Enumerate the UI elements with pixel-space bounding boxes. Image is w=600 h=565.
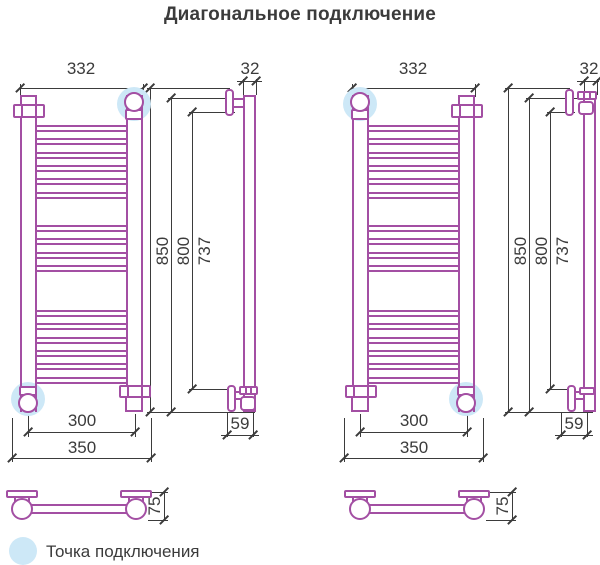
extension-line	[147, 88, 230, 89]
dim-height-mount-label: 737	[195, 234, 213, 268]
wall-bracket	[565, 89, 574, 116]
wall-bracket	[227, 385, 236, 412]
dim-tube-diameter-label: 32	[578, 59, 600, 79]
rung	[34, 323, 129, 330]
extension-line	[135, 414, 136, 437]
tube-section	[463, 498, 485, 520]
rung	[34, 337, 129, 344]
rung	[34, 252, 129, 259]
cap-ball-fitting	[124, 92, 144, 112]
dim-total-width-label: 350	[67, 438, 97, 458]
valve-nut	[240, 396, 256, 411]
drawing-sheet: Диагональное подключение 332 300	[0, 0, 600, 565]
rung	[366, 252, 461, 259]
rung	[366, 337, 461, 344]
valve-body	[125, 396, 143, 412]
dim-line	[150, 88, 151, 412]
rung	[34, 178, 129, 185]
rung	[366, 310, 461, 317]
valve-fitting	[345, 385, 377, 398]
rung	[366, 363, 461, 370]
rung	[34, 165, 129, 172]
left-collector-tube	[20, 95, 37, 412]
dim-line	[512, 492, 513, 520]
valve-nipple	[577, 91, 597, 100]
dim-axes-label: 300	[399, 411, 429, 431]
tube-section	[349, 498, 371, 520]
collector-bar	[360, 504, 474, 514]
extension-line	[148, 520, 168, 521]
cap-ball-fitting	[18, 393, 38, 413]
dim-total-width-label: 350	[399, 438, 429, 458]
extension-line	[505, 412, 593, 413]
dim-height-tube-label: 800	[532, 234, 550, 268]
dim-line	[508, 88, 509, 412]
tube-side-profile	[583, 95, 596, 412]
legend-label: Точка подключения	[46, 542, 200, 562]
dim-axes-label: 300	[67, 411, 97, 431]
rung	[366, 350, 461, 357]
rung	[366, 165, 461, 172]
rung	[366, 225, 461, 232]
valve-fitting	[13, 104, 45, 118]
rung	[366, 265, 461, 272]
tube-side-profile	[243, 95, 256, 412]
wall-plate	[458, 490, 490, 498]
wall-bracket	[225, 89, 234, 116]
rung	[34, 125, 129, 132]
rung	[34, 192, 129, 199]
valve-nipple	[239, 386, 258, 395]
rung	[34, 350, 129, 357]
right-collector-tube	[458, 95, 475, 412]
rung	[366, 125, 461, 132]
cap-ball-fitting	[350, 92, 370, 112]
rung	[366, 192, 461, 199]
valve-nut	[578, 101, 594, 115]
dim-top-width-label: 332	[66, 59, 96, 79]
dim-line	[12, 458, 151, 459]
cap-ball-fitting	[456, 393, 476, 413]
tube-section	[125, 498, 147, 520]
collector-bar	[22, 504, 136, 514]
rung-group	[366, 125, 461, 387]
dim-depth-label: 75	[493, 493, 511, 519]
rung	[34, 265, 129, 272]
rung	[366, 138, 461, 145]
left-collector-tube	[352, 95, 369, 412]
dim-top-width-label: 332	[398, 59, 428, 79]
rung	[366, 178, 461, 185]
dim-line	[344, 458, 483, 459]
rung	[34, 138, 129, 145]
rung	[34, 225, 129, 232]
dim-height-mount-label: 737	[553, 234, 571, 268]
union-nut	[579, 387, 595, 395]
tube-section	[11, 498, 33, 520]
valve-body	[351, 396, 369, 412]
dim-height-total-label: 850	[153, 234, 171, 268]
rung-group	[34, 125, 129, 387]
wall-plate	[6, 490, 38, 498]
dim-line	[360, 432, 467, 433]
wall-bracket	[567, 385, 576, 412]
rung	[366, 323, 461, 330]
rung	[34, 363, 129, 370]
extension-line	[147, 412, 255, 413]
dim-line	[352, 88, 475, 89]
rung	[366, 238, 461, 245]
rung	[34, 377, 129, 384]
rung	[366, 377, 461, 384]
right-collector-tube	[126, 95, 143, 412]
valve-fitting	[119, 385, 151, 398]
dim-height-total-label: 850	[511, 234, 529, 268]
wall-plate	[120, 490, 152, 498]
rung	[366, 152, 461, 159]
extension-line	[505, 88, 570, 89]
extension-line	[189, 389, 232, 390]
dim-wall-offset-label: 59	[227, 414, 253, 434]
extension-line	[28, 414, 29, 437]
valve-fitting	[451, 104, 483, 118]
dim-line	[164, 492, 165, 520]
rung	[34, 310, 129, 317]
rung	[34, 152, 129, 159]
wall-plate	[344, 490, 376, 498]
rung	[34, 238, 129, 245]
extension-line	[360, 414, 361, 437]
dim-height-tube-label: 800	[174, 234, 192, 268]
extension-line	[467, 414, 468, 437]
connection-point-legend-icon	[9, 537, 37, 565]
dim-wall-offset-label: 59	[561, 414, 587, 434]
page-title: Диагональное подключение	[0, 4, 600, 26]
dim-line	[28, 432, 135, 433]
